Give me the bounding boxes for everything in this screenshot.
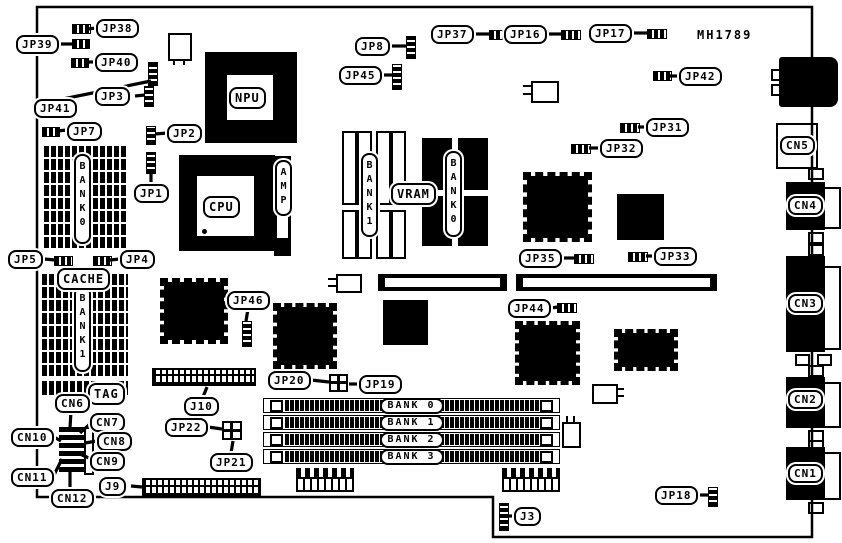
capacitor	[562, 422, 581, 448]
plcc-chip	[383, 300, 428, 345]
callout-cn3: CN3	[788, 294, 823, 313]
capacitor-lead	[523, 85, 531, 87]
callout-jp5: JP5	[8, 250, 43, 269]
connector-tab	[808, 244, 824, 256]
vram-chip	[342, 131, 357, 205]
callout-cn12: CN12	[51, 489, 94, 508]
callout-j9: J9	[99, 477, 126, 496]
callout-jp18: JP18	[655, 486, 698, 505]
jumper-jp5	[54, 256, 73, 266]
jumper-jp33	[628, 252, 648, 262]
cn2-shell	[823, 382, 841, 428]
power-connector-pins	[296, 468, 354, 477]
soj-chip	[458, 138, 488, 190]
vram-chip	[376, 210, 391, 259]
callout-cn4: CN4	[788, 196, 823, 215]
motherboard-diagram: MH1789 JP38 JP39 JP40 JP41 JP3 JP7 JP2 J…	[0, 0, 842, 543]
qfp-chip	[523, 172, 592, 242]
jumper-jp3	[144, 86, 154, 107]
simm-slot-bank0: BANK 0	[263, 398, 560, 413]
slot-latch	[270, 400, 283, 412]
vram-chip	[391, 210, 406, 259]
jumper-jp2	[146, 126, 156, 145]
jumper-jp18	[708, 487, 718, 507]
bank1-cache-label: BANK1	[74, 286, 91, 372]
callout-jp37: JP37	[431, 25, 474, 44]
crystal-lead	[173, 59, 175, 65]
callout-cn10: CN10	[11, 428, 54, 447]
jumper-jp39	[72, 39, 90, 49]
simm-slot-bank3: BANK 3	[263, 449, 560, 464]
slot-latch	[540, 434, 553, 446]
connector-tab	[808, 232, 824, 244]
qfp-chip	[273, 303, 337, 369]
simm-slot-bank2: BANK 2	[263, 432, 560, 447]
jumper-jp44	[557, 303, 577, 313]
jumper-jp20-jp19	[329, 374, 348, 392]
jumper-jp32	[571, 144, 591, 154]
callout-j3: J3	[514, 507, 541, 526]
jumper-jp41	[148, 62, 158, 86]
callout-jp7: JP7	[67, 122, 102, 141]
callout-jp19: JP19	[359, 375, 402, 394]
callout-jp33: JP33	[654, 247, 697, 266]
cpu-label: CPU	[203, 196, 240, 218]
plcc-chip	[617, 194, 664, 240]
cn1-shell	[823, 452, 841, 500]
slot-latch	[540, 400, 553, 412]
callout-jp1: JP1	[134, 184, 169, 203]
callout-jp31: JP31	[646, 118, 689, 137]
callout-jp38: JP38	[96, 19, 139, 38]
cpu-pin1-dot	[202, 229, 207, 234]
crystal	[168, 33, 192, 61]
capacitor	[336, 274, 362, 293]
connector-tab	[808, 502, 824, 514]
callout-jp4: JP4	[120, 250, 155, 269]
jumper-jp4	[93, 256, 112, 266]
simm-slot-label: BANK 1	[379, 415, 443, 431]
simm-slot-bank1: BANK 1	[263, 415, 560, 430]
cn3-shell	[823, 266, 841, 350]
cn-connector-stack	[59, 426, 84, 472]
jumper-jp45	[392, 64, 402, 90]
amp-label: AMP	[275, 160, 292, 216]
capacitor-lead	[328, 278, 336, 280]
power-connector	[296, 468, 354, 492]
callout-jp2: JP2	[167, 124, 202, 143]
jumper-jp17	[647, 29, 667, 39]
power-connector	[502, 468, 560, 492]
slot-latch	[270, 417, 283, 429]
npu-label: NPU	[229, 87, 266, 109]
callout-jp35: JP35	[519, 249, 562, 268]
jumper-jp38	[72, 24, 91, 34]
callout-cn7: CN7	[90, 413, 125, 432]
bank1-video-label: BANK1	[361, 153, 378, 237]
qfp-chip	[160, 278, 228, 344]
callout-jp32: JP32	[600, 139, 643, 158]
callout-jp44: JP44	[508, 299, 551, 318]
connector-tab	[808, 168, 824, 180]
callout-jp21: JP21	[210, 453, 253, 472]
slot-latch	[270, 451, 283, 463]
jumper-jp31	[620, 123, 640, 133]
bank0-left-label: BANK0	[74, 154, 91, 244]
qfp-chip	[614, 329, 678, 371]
qfp-chip	[515, 321, 580, 385]
jumper-jp16	[561, 30, 581, 40]
power-connector-pins	[502, 468, 560, 477]
jumper-jp40	[71, 58, 89, 68]
expansion-slot	[378, 274, 507, 291]
callout-cn8: CN8	[97, 432, 132, 451]
capacitor-lead	[616, 395, 624, 397]
capacitor-lead	[328, 285, 336, 287]
connector-tab	[808, 365, 824, 377]
capacitor-lead	[616, 388, 624, 390]
callout-cn2: CN2	[788, 390, 823, 409]
callout-cn9: CN9	[90, 452, 125, 471]
vram-chip	[376, 131, 391, 205]
capacitor-lead	[573, 416, 575, 422]
simm-slot-label: BANK 3	[379, 449, 443, 465]
callout-jp42: JP42	[679, 67, 722, 86]
j10-connector	[152, 368, 256, 386]
jumper-jp1	[146, 152, 156, 174]
callout-jp40: JP40	[95, 53, 138, 72]
callout-cn1: CN1	[788, 464, 823, 483]
cache-label: CACHE	[57, 268, 110, 290]
keyboard-connector	[779, 57, 838, 107]
power-connector-cells	[296, 477, 354, 492]
callout-jp41: JP41	[34, 99, 77, 118]
callout-jp16: JP16	[504, 25, 547, 44]
tag-label: TAG	[88, 383, 125, 405]
callout-jp17: JP17	[589, 24, 632, 43]
simm-slot-label: BANK 2	[379, 432, 443, 448]
soj-chip	[458, 196, 488, 246]
slot-latch	[540, 451, 553, 463]
board-id: MH1789	[697, 28, 752, 42]
capacitor	[592, 384, 618, 404]
jumper-jp42	[653, 71, 672, 81]
expansion-slot	[516, 274, 717, 291]
callout-jp22: JP22	[165, 418, 208, 437]
power-connector-cells	[502, 477, 560, 492]
vram-chip	[342, 210, 357, 259]
crystal-lead	[183, 59, 185, 65]
jumper-jp7	[42, 127, 60, 137]
callout-jp39: JP39	[16, 35, 59, 54]
vram-label: VRAM	[391, 183, 436, 205]
callout-jp46: JP46	[227, 291, 270, 310]
simm-slot-label: BANK 0	[379, 398, 443, 414]
jumper-jp8	[406, 36, 416, 59]
capacitor-lead	[523, 93, 531, 95]
callout-cn6: CN6	[55, 394, 90, 413]
bank0-video-label: BANK0	[445, 151, 462, 237]
callout-cn11: CN11	[11, 468, 54, 487]
slot-latch	[270, 434, 283, 446]
callout-cn5: CN5	[780, 136, 815, 155]
jumper-jp35	[574, 254, 594, 264]
capacitor	[531, 81, 559, 103]
capacitor-lead	[566, 416, 568, 422]
jumper-jp22-jp21	[222, 421, 242, 440]
callout-jp45: JP45	[339, 66, 382, 85]
cn4-shell	[823, 187, 841, 229]
callout-jp20: JP20	[268, 371, 311, 390]
jumper-jp46	[242, 321, 252, 347]
j3-connector	[499, 503, 509, 531]
callout-jp8: JP8	[355, 37, 390, 56]
callout-j10: J10	[184, 397, 219, 416]
j9-connector	[142, 478, 261, 497]
callout-jp3: JP3	[95, 87, 130, 106]
slot-latch	[540, 417, 553, 429]
